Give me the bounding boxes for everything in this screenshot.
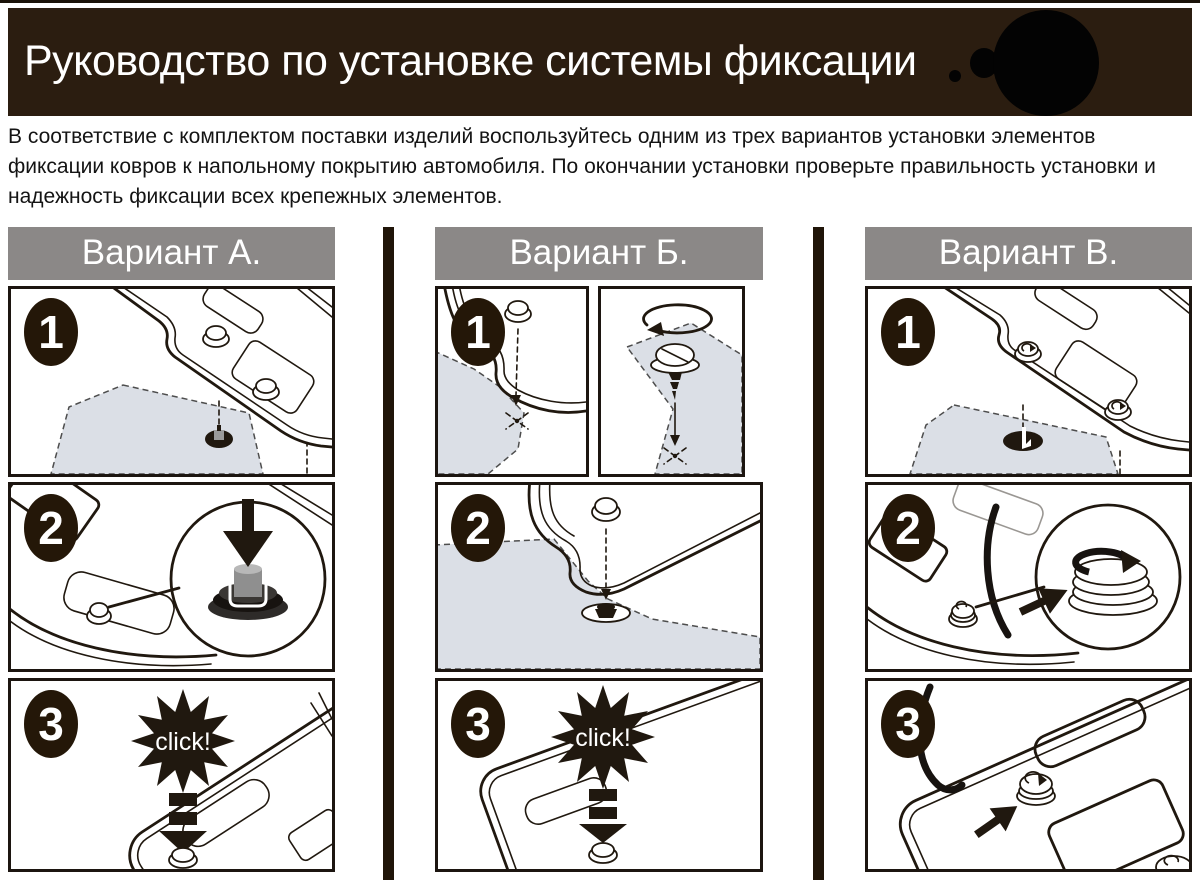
- push-down-dashed-arrow-icon: [159, 793, 207, 853]
- mat-button: [505, 301, 531, 322]
- press-down-arrow-icon: [223, 499, 273, 567]
- turnlock-fastener-icon: [949, 601, 977, 627]
- turnlock-fastener-icon: [1017, 772, 1055, 805]
- clip-magnified-icon: [208, 564, 288, 620]
- variant-c-title: Вариант В.: [865, 227, 1192, 280]
- variant-a-step-1-panel: 1: [8, 286, 335, 477]
- logo-dot-icon: [949, 70, 961, 82]
- variant-b-title: Вариант Б.: [435, 227, 763, 280]
- mat-button: [203, 326, 229, 347]
- step-3-badge: 3: [881, 690, 935, 758]
- mat-button: [589, 843, 617, 863]
- variant-a-title: Вариант А.: [8, 227, 335, 280]
- step-3-badge: 3: [451, 690, 505, 758]
- variant-c-step-1-panel: 1: [865, 286, 1192, 477]
- instruction-sheet: Руководство по установке системы фиксаци…: [0, 0, 1200, 889]
- step-1-badge: 1: [24, 298, 78, 366]
- step-2-badge: 2: [24, 494, 78, 562]
- variant-a-step-2-panel: 2: [8, 482, 335, 672]
- mat-button: [253, 379, 279, 400]
- turnlock-fastener-icon: [1156, 856, 1189, 869]
- step-1-badge: 1: [881, 298, 935, 366]
- redacted-logo-icon: [993, 10, 1099, 116]
- variant-c-column: Вариант В. 1: [865, 227, 1192, 872]
- click-burst-icon: click!: [131, 689, 235, 793]
- variant-b-step-3-panel: 3 click!: [435, 678, 763, 872]
- header-bar: Руководство по установке системы фиксаци…: [8, 8, 1192, 116]
- installed-fastener-icon: [582, 603, 630, 622]
- variant-a-column: Вариант А. 1: [8, 227, 335, 872]
- click-label: click!: [575, 724, 631, 752]
- mat-button: [169, 848, 197, 868]
- variant-b-step1-screw-illustration: [601, 289, 742, 474]
- step-3-badge: 3: [24, 690, 78, 758]
- scan-edge-line: [0, 0, 1200, 3]
- insert-arrow-icon: [968, 795, 1025, 847]
- mat-button: [87, 603, 111, 624]
- mat-button: [592, 498, 620, 521]
- intro-paragraph: В соответствие с комплектом поставки изд…: [8, 122, 1178, 212]
- variant-b-step-2-panel: 2: [435, 482, 763, 672]
- turnlock-magnified-icon: [1069, 550, 1157, 615]
- step-2-badge: 2: [451, 494, 505, 562]
- variant-c-step-2-panel: 2: [865, 482, 1192, 672]
- turnlock-fastener-icon: [1015, 342, 1041, 362]
- variant-b-step-1-right-panel: [598, 286, 745, 477]
- click-burst-icon: click!: [551, 685, 655, 789]
- step-1-badge: 1: [451, 298, 505, 366]
- column-divider-1: [383, 227, 394, 880]
- turnlock-fastener-icon: [1105, 400, 1131, 420]
- step-2-badge: 2: [881, 494, 935, 562]
- variant-b-column: Вариант Б. 1: [435, 227, 763, 872]
- carpet-patch: [51, 385, 263, 474]
- variant-c-step-3-panel: 3: [865, 678, 1192, 872]
- variant-b-step-1-panels: 1: [435, 286, 763, 477]
- variant-a-step-3-panel: 3 click!: [8, 678, 335, 872]
- column-divider-2: [813, 227, 824, 880]
- variant-b-step-1-left-panel: 1: [435, 286, 589, 477]
- push-down-dashed-arrow-icon: [579, 789, 627, 843]
- insert-arrow-icon: [1015, 577, 1074, 624]
- click-label: click!: [155, 728, 211, 756]
